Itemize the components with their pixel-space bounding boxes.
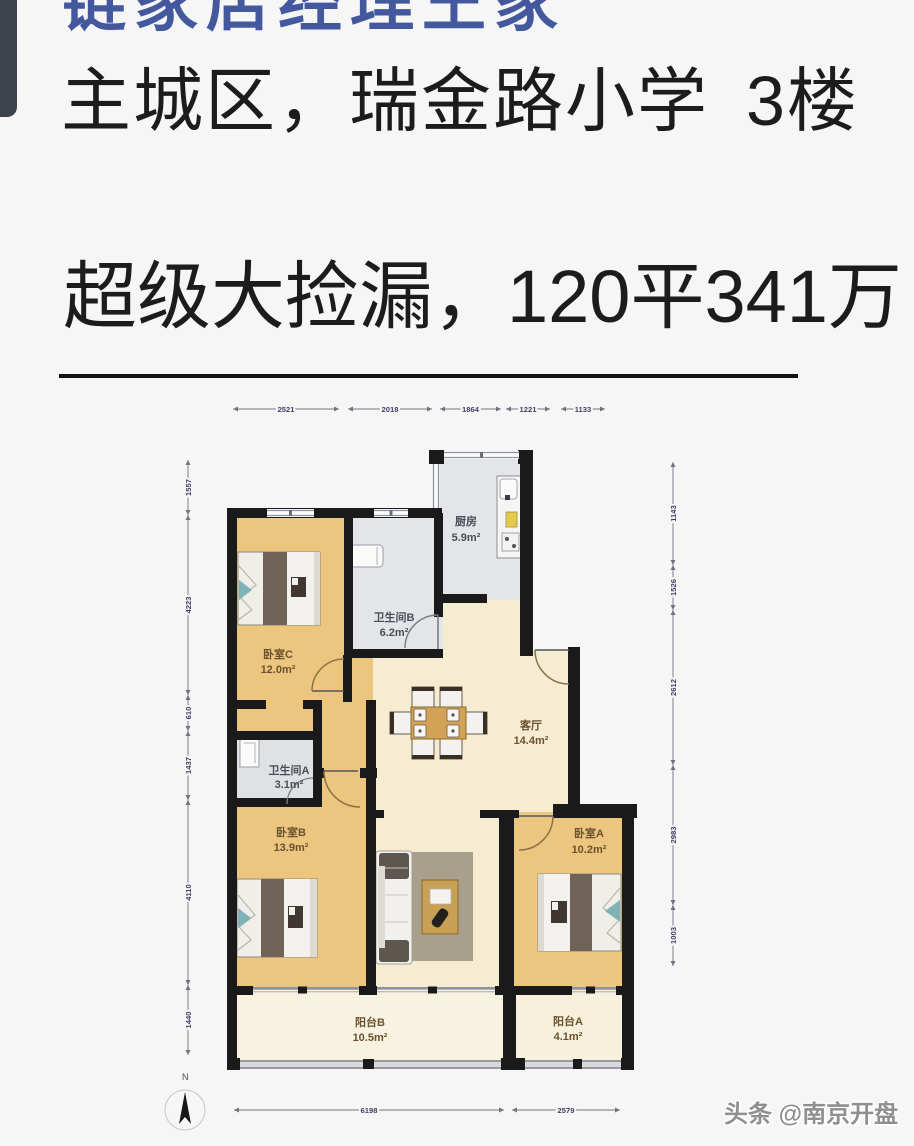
svg-text:1003: 1003 bbox=[669, 927, 678, 944]
svg-text:阳台B: 阳台B bbox=[355, 1015, 385, 1029]
svg-text:6198: 6198 bbox=[361, 1106, 378, 1115]
svg-text:1526: 1526 bbox=[669, 579, 678, 596]
svg-text:6.2m²: 6.2m² bbox=[380, 627, 409, 639]
svg-text:1221: 1221 bbox=[520, 405, 538, 414]
svg-text:1143: 1143 bbox=[669, 505, 678, 521]
svg-text:4.1m²: 4.1m² bbox=[554, 1031, 583, 1043]
svg-text:2018: 2018 bbox=[382, 405, 399, 414]
svg-text:1133: 1133 bbox=[575, 405, 591, 414]
svg-text:610: 610 bbox=[184, 707, 193, 720]
svg-text:卫生间A: 卫生间A bbox=[269, 763, 310, 777]
svg-text:10.5m²: 10.5m² bbox=[353, 1032, 388, 1044]
svg-text:14.4m²: 14.4m² bbox=[514, 735, 549, 747]
svg-text:卧室A: 卧室A bbox=[574, 826, 604, 840]
svg-text:10.2m²: 10.2m² bbox=[572, 844, 607, 856]
svg-text:厨房: 厨房 bbox=[455, 514, 477, 528]
svg-text:1440: 1440 bbox=[184, 1012, 193, 1029]
svg-text:卫生间B: 卫生间B bbox=[374, 610, 415, 624]
svg-text:13.9m²: 13.9m² bbox=[274, 842, 309, 854]
svg-text:2579: 2579 bbox=[558, 1106, 575, 1115]
svg-text:1557: 1557 bbox=[184, 479, 193, 496]
svg-text:1437: 1437 bbox=[184, 757, 193, 774]
svg-text:2612: 2612 bbox=[669, 679, 678, 696]
svg-text:12.0m²: 12.0m² bbox=[261, 664, 296, 676]
svg-text:N: N bbox=[182, 1072, 189, 1082]
svg-text:4223: 4223 bbox=[184, 597, 193, 614]
svg-text:阳台A: 阳台A bbox=[553, 1014, 583, 1028]
svg-text:卧室C: 卧室C bbox=[263, 647, 293, 661]
svg-text:2521: 2521 bbox=[278, 405, 296, 414]
svg-text:3.1m²: 3.1m² bbox=[275, 779, 304, 791]
svg-text:5.9m²: 5.9m² bbox=[452, 532, 481, 544]
svg-text:4110: 4110 bbox=[184, 884, 193, 900]
svg-text:2983: 2983 bbox=[669, 827, 678, 844]
svg-text:1864: 1864 bbox=[462, 405, 480, 414]
svg-text:卧室B: 卧室B bbox=[276, 825, 306, 839]
svg-text:客厅: 客厅 bbox=[519, 718, 542, 732]
